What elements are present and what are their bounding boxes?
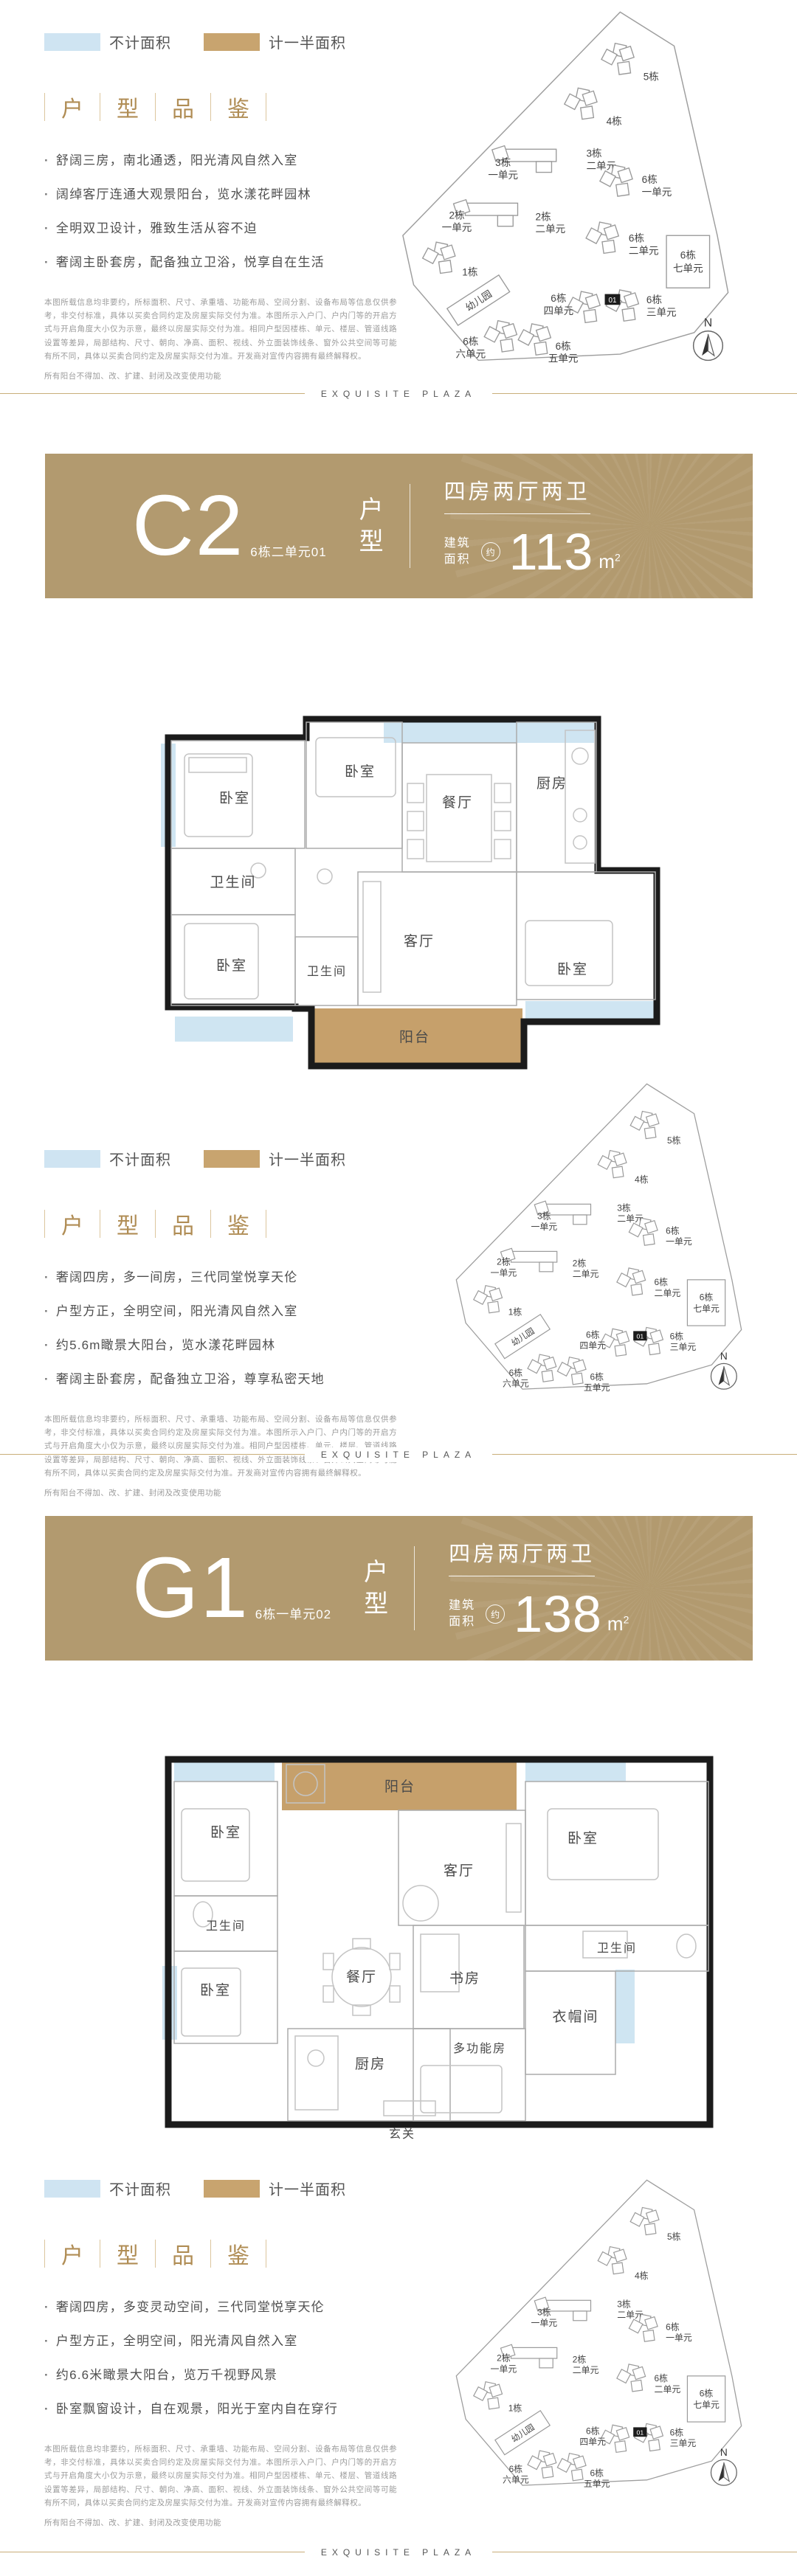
info-section-2: 不计面积 计一半面积 户 型 品 鉴 奢阔四房，多一间房，三代同堂悦享天伦 户型… bbox=[44, 1148, 443, 1498]
legend-swatch-tan bbox=[204, 2180, 260, 2198]
siteplan-building-label: 5栋 bbox=[644, 71, 660, 82]
svg-text:N: N bbox=[720, 1351, 728, 1362]
svg-text:6栋: 6栋 bbox=[556, 341, 572, 352]
legend-swatch-blue bbox=[44, 1150, 100, 1168]
svg-text:五单元: 五单元 bbox=[584, 1382, 610, 1393]
svg-text:6栋: 6栋 bbox=[666, 1226, 680, 1236]
svg-text:二单元: 二单元 bbox=[573, 1269, 599, 1279]
unit-type-label: 户型 bbox=[359, 494, 387, 558]
svg-text:6栋: 6栋 bbox=[700, 1292, 714, 1302]
svg-text:6栋: 6栋 bbox=[670, 1331, 684, 1341]
room-label: 阳台 bbox=[384, 1779, 415, 1795]
room-label: 卧室 bbox=[216, 958, 247, 974]
svg-text:六单元: 六单元 bbox=[455, 348, 486, 359]
svg-text:二单元: 二单元 bbox=[573, 2365, 599, 2375]
svg-text:3栋: 3栋 bbox=[617, 1202, 631, 1213]
room-label: 厨房 bbox=[355, 2056, 386, 2072]
floorplan-g1: 阳台 卧室 客厅 卧室 卫生间 卧室 餐厅 厨房 书房 玄关 多功能房 卫生间 … bbox=[66, 1682, 731, 2139]
svg-text:一单元: 一单元 bbox=[442, 222, 472, 233]
svg-text:6栋: 6栋 bbox=[509, 1368, 523, 1378]
banner-divider bbox=[414, 1546, 415, 1630]
svg-text:六单元: 六单元 bbox=[503, 1378, 529, 1388]
svg-text:2栋: 2栋 bbox=[497, 1257, 511, 1267]
svg-text:1栋: 1栋 bbox=[508, 2403, 522, 2413]
approx-badge: 约 bbox=[486, 1604, 505, 1624]
layout-title: 四房两厅两卫 bbox=[449, 1537, 595, 1576]
window-strip bbox=[525, 1001, 655, 1020]
svg-text:2栋: 2栋 bbox=[573, 2355, 587, 2365]
legend-label: 不计面积 bbox=[109, 2178, 171, 2199]
svg-text:6栋: 6栋 bbox=[463, 336, 479, 347]
legend-swatch-blue bbox=[44, 33, 100, 51]
feature-bullet: 奢阔四房，多一间房，三代同堂悦享天伦 bbox=[44, 1270, 443, 1286]
siteplan: 5栋 4栋 3栋 一单元 3栋 二单元 6栋 一单元 2栋 一单元 2栋 二单元… bbox=[443, 1078, 747, 1396]
svg-text:6栋: 6栋 bbox=[629, 233, 645, 244]
svg-text:3栋: 3栋 bbox=[537, 2307, 551, 2317]
siteplan-building-label: 4栋 bbox=[607, 116, 623, 127]
siteplan-map: 5栋 4栋 3栋 一单元 3栋 二单元 6栋 一单元 2栋 一单元 2栋 二单元… bbox=[443, 2175, 747, 2492]
disclaimer-text: 本图所载信息均非要约，所标面积、尺寸、承重墙、功能布局、空间分割、设备布局等信息… bbox=[44, 296, 397, 362]
svg-text:1栋: 1栋 bbox=[462, 267, 478, 278]
feature-list: 奢阔四房，多变灵动空间，三代同堂悦享天伦 户型方正，全明空间，阳光清风自然入室 … bbox=[44, 2299, 443, 2417]
svg-text:二单元: 二单元 bbox=[536, 224, 566, 235]
svg-text:N: N bbox=[720, 2447, 728, 2458]
svg-text:2栋: 2栋 bbox=[573, 1258, 587, 1269]
unit-code: G1 6栋一单元02 bbox=[132, 1553, 331, 1623]
room-label: 衣帽间 bbox=[552, 2009, 598, 2025]
window-strip bbox=[175, 1017, 293, 1042]
furniture bbox=[182, 1765, 696, 2116]
svg-text:6栋: 6栋 bbox=[586, 2426, 600, 2437]
svg-text:四单元: 四单元 bbox=[579, 2437, 606, 2447]
feature-bullet: 约5.6m瞰景大阳台，览水漾花畔园林 bbox=[44, 1337, 443, 1354]
svg-text:6栋: 6栋 bbox=[655, 1277, 669, 1287]
room-label: 厨房 bbox=[536, 775, 567, 792]
furniture bbox=[184, 730, 613, 999]
area-legend: 不计面积 计一半面积 bbox=[44, 1148, 443, 1169]
room-label: 餐厅 bbox=[346, 1969, 377, 1985]
layout-title: 四房两厅两卫 bbox=[444, 474, 590, 514]
banner-divider bbox=[410, 484, 410, 568]
svg-text:一单元: 一单元 bbox=[666, 1236, 692, 1247]
svg-text:6栋: 6栋 bbox=[642, 174, 658, 185]
feature-bullet: 奢阔主卧套房，配备独立卫浴，尊享私密天地 bbox=[44, 1371, 443, 1388]
review-header: 户 型 品 鉴 bbox=[44, 1208, 443, 1240]
area-unit: m2 bbox=[598, 550, 620, 573]
svg-text:2栋: 2栋 bbox=[536, 211, 552, 222]
unit-number: 6栋二单元01 bbox=[250, 541, 326, 560]
svg-text:3栋: 3栋 bbox=[537, 1211, 551, 1221]
brochure-page: 不计面积 计一半面积 户 型 品 鉴 舒阔三房，南北通透，阳光清风自然入室 阔绰… bbox=[0, 0, 797, 2576]
info-section-3: 不计面积 计一半面积 户 型 品 鉴 奢阔四房，多变灵动空间，三代同堂悦享天伦 … bbox=[44, 2178, 443, 2528]
svg-text:01: 01 bbox=[637, 2428, 644, 2436]
feature-bullet: 奢阔四房，多变灵动空间，三代同堂悦享天伦 bbox=[44, 2299, 443, 2316]
window-strip bbox=[384, 721, 594, 743]
room-label: 卧室 bbox=[219, 790, 250, 806]
siteplan: 5栋 4栋 3栋 一单元 3栋 二单元 6栋 一单元 2栋 一单元 2栋 二单元… bbox=[387, 6, 734, 368]
svg-text:6栋: 6栋 bbox=[590, 2468, 604, 2478]
room-label: 玄关 bbox=[389, 2127, 415, 2139]
legend-label: 计一半面积 bbox=[269, 1148, 346, 1169]
svg-text:2栋: 2栋 bbox=[449, 210, 465, 221]
room-label: 卫生间 bbox=[307, 965, 347, 978]
svg-text:二单元: 二单元 bbox=[629, 245, 659, 256]
svg-text:01: 01 bbox=[637, 1332, 644, 1340]
siteplan-building-label: 4栋 bbox=[635, 2271, 649, 2281]
svg-text:6栋: 6栋 bbox=[655, 2373, 669, 2383]
svg-text:六单元: 六单元 bbox=[503, 2474, 529, 2485]
brand-footer: EXQUISITE PLAZA bbox=[0, 1447, 797, 1462]
svg-text:五单元: 五单元 bbox=[584, 2479, 610, 2489]
area-value: 138 bbox=[514, 1588, 602, 1640]
svg-text:3栋: 3栋 bbox=[617, 2299, 631, 2309]
room-label: 阳台 bbox=[399, 1029, 430, 1045]
svg-text:6栋: 6栋 bbox=[670, 2427, 684, 2437]
feature-bullet: 全明双卫设计，雅致生活从容不迫 bbox=[44, 221, 443, 237]
siteplan-map: 5栋 4栋 3栋 一单元 3栋 二单元 6栋 一单元 2栋 一单元 2栋 二单元… bbox=[443, 1078, 747, 1396]
svg-text:6栋: 6栋 bbox=[586, 1330, 600, 1340]
feature-bullet: 舒阔三房，南北通透，阳光清风自然入室 bbox=[44, 153, 443, 169]
room-label: 卧室 bbox=[557, 961, 588, 977]
svg-text:01: 01 bbox=[608, 297, 617, 305]
legend-swatch-tan bbox=[204, 33, 260, 51]
svg-text:一单元: 一单元 bbox=[642, 187, 672, 198]
svg-text:四单元: 四单元 bbox=[544, 305, 574, 316]
feature-list: 舒阔三房，南北通透，阳光清风自然入室 阔绰客厅连通大观景阳台，览水漾花畔园林 全… bbox=[44, 153, 443, 271]
area-value: 113 bbox=[509, 526, 594, 578]
brand-footer: EXQUISITE PLAZA bbox=[0, 2545, 797, 2560]
svg-text:6栋: 6栋 bbox=[646, 294, 663, 305]
siteplan-building-label: 5栋 bbox=[667, 1135, 681, 1146]
svg-text:3栋: 3栋 bbox=[586, 148, 602, 159]
siteplan: 5栋 4栋 3栋 一单元 3栋 二单元 6栋 一单元 2栋 一单元 2栋 二单元… bbox=[443, 2175, 747, 2492]
svg-text:6栋: 6栋 bbox=[680, 250, 697, 261]
window-strip bbox=[174, 1761, 275, 1782]
svg-text:二单元: 二单元 bbox=[586, 160, 616, 171]
svg-text:6栋: 6栋 bbox=[700, 2388, 714, 2398]
svg-text:1栋: 1栋 bbox=[508, 1306, 522, 1317]
svg-text:2栋: 2栋 bbox=[497, 2353, 511, 2364]
svg-text:一单元: 一单元 bbox=[531, 1222, 557, 1232]
info-section-1: 不计面积 计一半面积 户 型 品 鉴 舒阔三房，南北通透，阳光清风自然入室 阔绰… bbox=[44, 31, 443, 381]
window-strip bbox=[615, 1970, 635, 2043]
feature-bullet: 户型方正，全明空间，阳光清风自然入室 bbox=[44, 2333, 443, 2350]
area-label: 建筑面积 bbox=[444, 536, 471, 567]
unit-type-label: 户型 bbox=[364, 1557, 392, 1620]
approx-badge: 约 bbox=[481, 542, 500, 561]
room-label: 客厅 bbox=[404, 933, 435, 949]
svg-text:二单元: 二单元 bbox=[655, 2384, 681, 2395]
unit-number: 6栋一单元02 bbox=[255, 1604, 331, 1622]
unit-banner-c2: C2 6栋二单元01 户型 四房两厅两卫 建筑面积 约 113 m2 bbox=[45, 454, 753, 598]
feature-bullet: 约6.6米瞰景大阳台，览万千视野风景 bbox=[44, 2367, 443, 2383]
review-header: 户 型 品 鉴 bbox=[44, 2237, 443, 2270]
svg-text:一单元: 一单元 bbox=[531, 2318, 557, 2328]
feature-bullet: 阔绰客厅连通大观景阳台，览水漾花畔园林 bbox=[44, 187, 443, 203]
legend-swatch-tan bbox=[204, 1150, 260, 1168]
disclaimer-text: 本图所载信息均非要约，所标面积、尺寸、承重墙、功能布局、空间分割、设备布局等信息… bbox=[44, 2442, 397, 2509]
unit-spec: 四房两厅两卫 建筑面积 约 138 m2 bbox=[449, 1537, 629, 1640]
svg-text:6栋: 6栋 bbox=[509, 2464, 523, 2474]
feature-bullet: 户型方正，全明空间，阳光清风自然入室 bbox=[44, 1303, 443, 1320]
svg-text:6栋: 6栋 bbox=[590, 1371, 604, 1382]
svg-text:N: N bbox=[704, 316, 712, 329]
svg-text:二单元: 二单元 bbox=[655, 1288, 681, 1298]
svg-text:三单元: 三单元 bbox=[670, 1342, 697, 1352]
floorplan-c2: 卧室 卧室 餐厅 厨房 卫生间 卧室 卫生间 客厅 卧室 阳台 bbox=[74, 627, 723, 1070]
legend-label: 不计面积 bbox=[109, 31, 171, 52]
balcony-note: 所有阳台不得加、改、扩建、封闭及改变使用功能 bbox=[44, 370, 443, 381]
disclaimer-text: 本图所载信息均非要约，所标面积、尺寸、承重墙、功能布局、空间分割、设备布局等信息… bbox=[44, 1413, 397, 1479]
area-unit: m2 bbox=[607, 1613, 629, 1635]
room-label: 卧室 bbox=[567, 1830, 598, 1846]
legend-label: 计一半面积 bbox=[269, 31, 346, 52]
svg-text:三单元: 三单元 bbox=[670, 2438, 697, 2448]
feature-list: 奢阔四房，多一间房，三代同堂悦享天伦 户型方正，全明空间，阳光清风自然入室 约5… bbox=[44, 1270, 443, 1388]
brand-footer: EXQUISITE PLAZA bbox=[0, 387, 797, 401]
legend-swatch-blue bbox=[44, 2180, 100, 2198]
svg-text:一单元: 一单元 bbox=[491, 1267, 517, 1278]
siteplan-building-label: 5栋 bbox=[667, 2232, 681, 2242]
siteplan-map: 5栋 4栋 3栋 一单元 3栋 二单元 6栋 一单元 2栋 一单元 2栋 二单元… bbox=[387, 6, 734, 368]
svg-text:四单元: 四单元 bbox=[579, 1340, 606, 1351]
room-label: 卫生间 bbox=[206, 1919, 246, 1933]
svg-text:二单元: 二单元 bbox=[617, 2310, 644, 2320]
svg-text:6栋: 6栋 bbox=[551, 293, 567, 304]
svg-text:七单元: 七单元 bbox=[693, 2400, 720, 2410]
area-legend: 不计面积 计一半面积 bbox=[44, 31, 443, 52]
balcony-note: 所有阳台不得加、改、扩建、封闭及改变使用功能 bbox=[44, 2517, 443, 2528]
room-label: 卧室 bbox=[345, 764, 376, 780]
svg-text:五单元: 五单元 bbox=[548, 353, 579, 364]
svg-text:一单元: 一单元 bbox=[488, 170, 518, 181]
room-label: 书房 bbox=[449, 1970, 480, 1987]
svg-text:一单元: 一单元 bbox=[666, 2333, 692, 2343]
svg-text:二单元: 二单元 bbox=[617, 1213, 644, 1224]
room-label: 客厅 bbox=[444, 1863, 475, 1879]
room-label: 卧室 bbox=[210, 1824, 241, 1841]
room-label: 卫生间 bbox=[597, 1942, 637, 1955]
svg-text:一单元: 一单元 bbox=[491, 2364, 517, 2374]
area-label: 建筑面积 bbox=[449, 1598, 475, 1630]
unit-spec: 四房两厅两卫 建筑面积 约 113 m2 bbox=[444, 474, 621, 578]
unit-banner-g1: G1 6栋一单元02 户型 四房两厅两卫 建筑面积 约 138 m2 bbox=[45, 1516, 753, 1661]
feature-bullet: 卧室飘窗设计，自在观景，阳光于室内自在穿行 bbox=[44, 2401, 443, 2417]
area-legend: 不计面积 计一半面积 bbox=[44, 2178, 443, 2199]
svg-text:三单元: 三单元 bbox=[646, 307, 677, 318]
svg-text:七单元: 七单元 bbox=[673, 263, 703, 274]
review-header: 户 型 品 鉴 bbox=[44, 91, 443, 123]
svg-text:6栋: 6栋 bbox=[666, 2322, 680, 2333]
svg-text:七单元: 七单元 bbox=[693, 1303, 720, 1314]
siteplan-building-label: 4栋 bbox=[635, 1174, 649, 1185]
window-strip bbox=[525, 1761, 626, 1782]
balcony-note: 所有阳台不得加、改、扩建、封闭及改变使用功能 bbox=[44, 1487, 443, 1498]
legend-label: 不计面积 bbox=[109, 1148, 171, 1169]
legend-label: 计一半面积 bbox=[269, 2178, 346, 2199]
room-labels: 阳台 卧室 客厅 卧室 卫生间 卧室 餐厅 厨房 书房 玄关 多功能房 卫生间 … bbox=[200, 1779, 637, 2139]
room-label: 卫生间 bbox=[210, 874, 256, 890]
feature-bullet: 奢阔主卧套房，配备独立卫浴，悦享自在生活 bbox=[44, 255, 443, 271]
room-label: 卧室 bbox=[200, 1982, 231, 1998]
svg-text:3栋: 3栋 bbox=[495, 157, 511, 168]
unit-code: C2 6栋二单元01 bbox=[132, 491, 327, 561]
room-label: 餐厅 bbox=[442, 794, 473, 811]
room-label: 多功能房 bbox=[453, 2042, 506, 2055]
